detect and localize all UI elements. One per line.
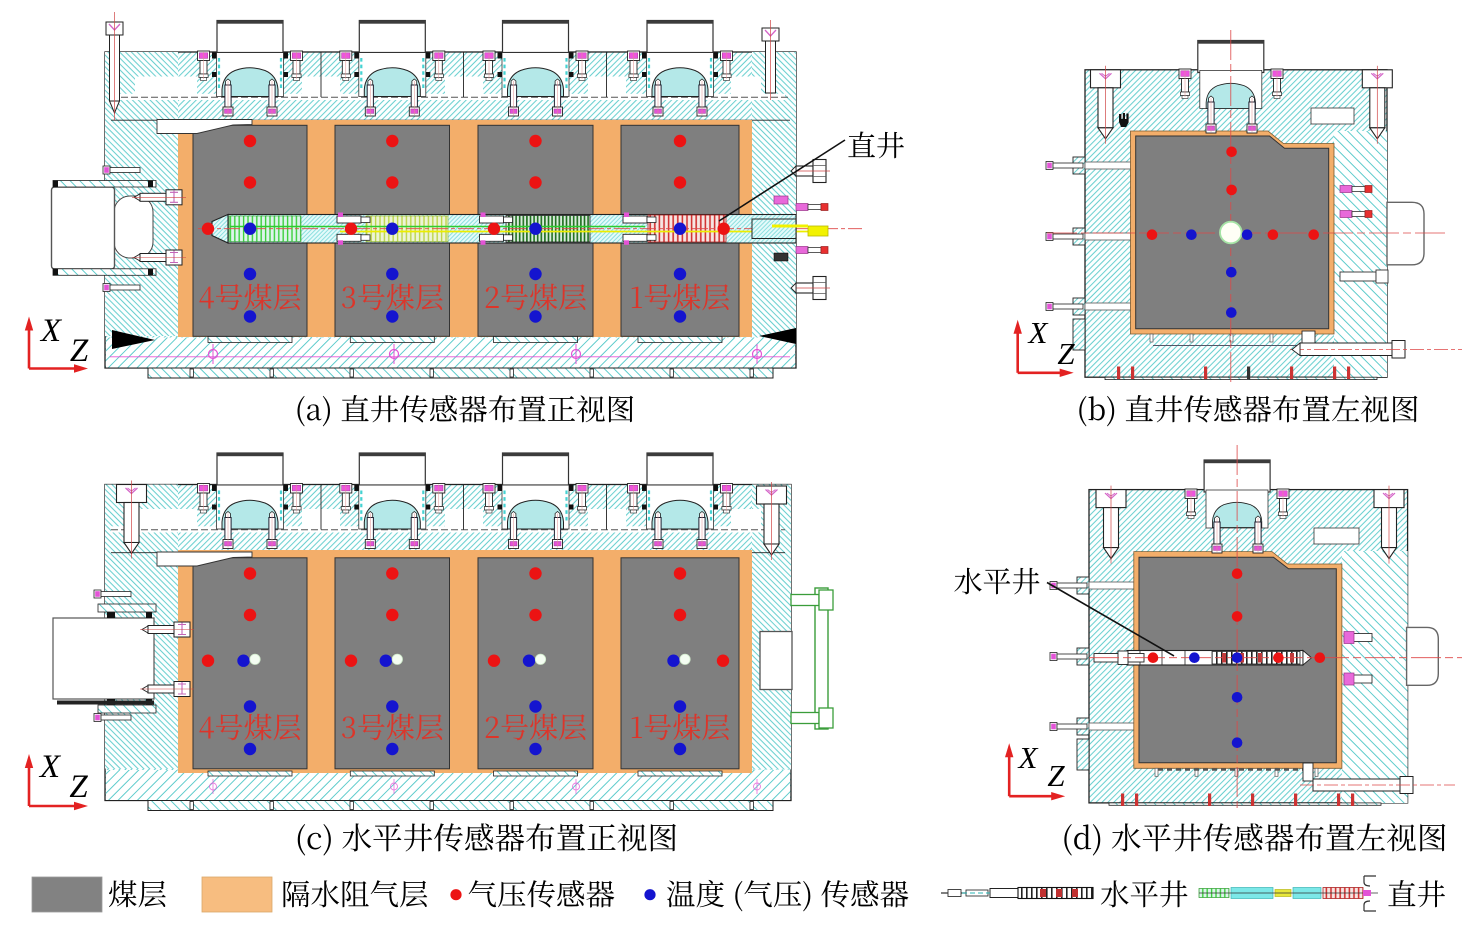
svg-text:X: X: [1027, 315, 1049, 350]
svg-text:Z: Z: [1047, 758, 1065, 793]
svg-text:X: X: [39, 313, 63, 349]
svg-text:X: X: [38, 749, 62, 785]
svg-text:Z: Z: [1057, 336, 1075, 371]
svg-text:Z: Z: [70, 333, 89, 369]
svg-text:Z: Z: [69, 769, 88, 805]
svg-text:X: X: [1017, 740, 1039, 775]
